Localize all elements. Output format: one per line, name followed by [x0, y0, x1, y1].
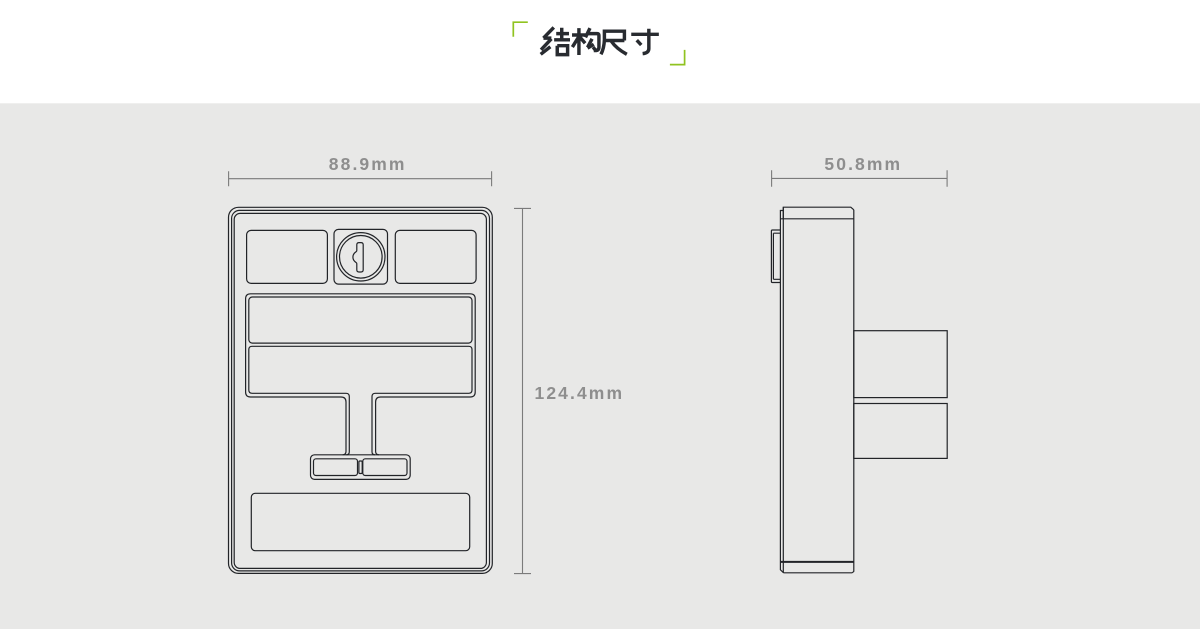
svg-text:88.9mm: 88.9mm: [329, 154, 407, 174]
svg-text:124.4mm: 124.4mm: [535, 383, 625, 403]
svg-text:50.8mm: 50.8mm: [824, 154, 902, 174]
